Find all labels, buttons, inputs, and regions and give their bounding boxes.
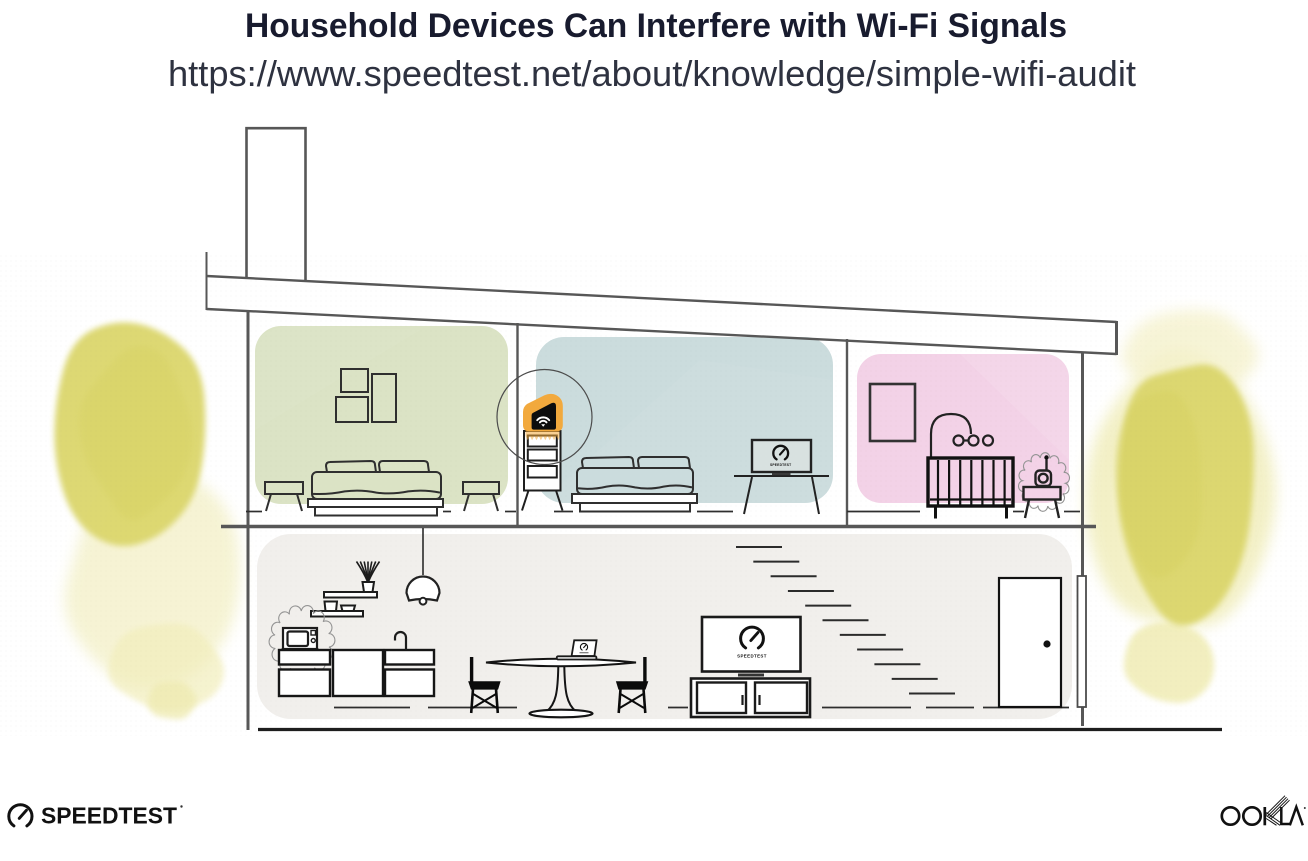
svg-text:SPEEDTEST: SPEEDTEST bbox=[41, 803, 178, 829]
svg-text:SPEEDTEST: SPEEDTEST bbox=[770, 463, 791, 467]
svg-text:SPEEDTEST: SPEEDTEST bbox=[737, 654, 767, 659]
svg-text:Household Devices Can Interfer: Household Devices Can Interfere with Wi-… bbox=[245, 7, 1067, 45]
svg-text:https://www.speedtest.net/abou: https://www.speedtest.net/about/knowledg… bbox=[168, 53, 1136, 94]
